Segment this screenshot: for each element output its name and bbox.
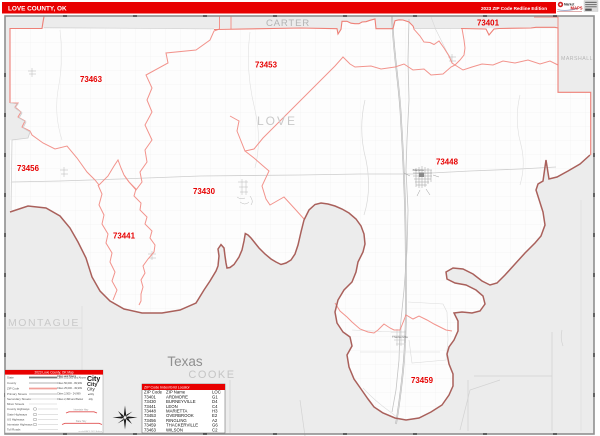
svg-text:COOKE: COOKE bbox=[188, 369, 235, 381]
svg-text:CARTER: CARTER bbox=[266, 18, 310, 29]
svg-text:Interstate Hwy: Interstate Hwy bbox=[74, 409, 90, 412]
svg-text:Primary Streets: Primary Streets bbox=[7, 392, 27, 396]
svg-text:ZIP Code: ZIP Code bbox=[7, 387, 20, 391]
svg-text:City: City bbox=[87, 387, 95, 392]
svg-text:Cities 2,499 and Below: Cities 2,499 and Below bbox=[57, 397, 83, 401]
svg-text:73459: 73459 bbox=[411, 376, 434, 385]
svg-text:73463: 73463 bbox=[144, 427, 157, 432]
svg-text:Texas: Texas bbox=[167, 354, 203, 369]
svg-text:WILSON: WILSON bbox=[166, 427, 183, 432]
svg-text:Interstate Highways: Interstate Highways bbox=[7, 423, 33, 427]
svg-text:Cities 100,000 and Above: Cities 100,000 and Above bbox=[57, 376, 87, 380]
svg-text:◦city: ◦city bbox=[88, 397, 94, 401]
svg-text:LOVE: LOVE bbox=[257, 114, 297, 128]
svg-text:State: State bbox=[7, 376, 14, 380]
svg-text:US Highways: US Highways bbox=[7, 418, 25, 422]
svg-text:MONTAGUE: MONTAGUE bbox=[8, 317, 80, 329]
svg-text:Cities 50,000 - 99,999: Cities 50,000 - 99,999 bbox=[57, 381, 83, 385]
svg-text:73456: 73456 bbox=[17, 164, 40, 173]
svg-text:73463: 73463 bbox=[80, 75, 103, 84]
svg-text:73401: 73401 bbox=[477, 19, 500, 28]
svg-text:marketMAPS 2023 Edition: marketMAPS 2023 Edition bbox=[79, 430, 102, 433]
svg-text:MAPS: MAPS bbox=[571, 5, 583, 10]
svg-text:MARSHALL: MARSHALL bbox=[561, 56, 593, 62]
svg-text:State Hwy: State Hwy bbox=[76, 420, 87, 423]
svg-text:County Highways: County Highways bbox=[7, 407, 30, 411]
svg-text:Secondary Streets: Secondary Streets bbox=[7, 397, 31, 401]
svg-text:73430: 73430 bbox=[193, 187, 216, 196]
svg-text:County: County bbox=[7, 381, 17, 385]
svg-text:Thackerville: Thackerville bbox=[392, 335, 408, 339]
svg-text:State Highways: State Highways bbox=[7, 413, 28, 417]
svg-text:Toll Roads: Toll Roads bbox=[7, 428, 21, 432]
svg-text:Minor Streets: Minor Streets bbox=[7, 402, 25, 406]
svg-text:Cities 25,000 - 49,999: Cities 25,000 - 49,999 bbox=[57, 386, 83, 390]
svg-text:Cities 2,500 - 24,999: Cities 2,500 - 24,999 bbox=[57, 392, 81, 396]
svg-text:2023 ZIP Code Redline Edition: 2023 ZIP Code Redline Edition bbox=[481, 6, 547, 11]
svg-text:Marietta: Marietta bbox=[413, 168, 424, 172]
svg-text:●City: ●City bbox=[88, 392, 95, 396]
svg-text:2023 Love County, OK Map: 2023 Love County, OK Map bbox=[34, 371, 73, 375]
svg-text:73448: 73448 bbox=[436, 158, 459, 167]
svg-text:73453: 73453 bbox=[255, 61, 278, 70]
svg-text:73441: 73441 bbox=[113, 232, 136, 241]
svg-text:LOVE COUNTY, OK: LOVE COUNTY, OK bbox=[8, 5, 67, 12]
svg-text:C2: C2 bbox=[212, 427, 218, 432]
